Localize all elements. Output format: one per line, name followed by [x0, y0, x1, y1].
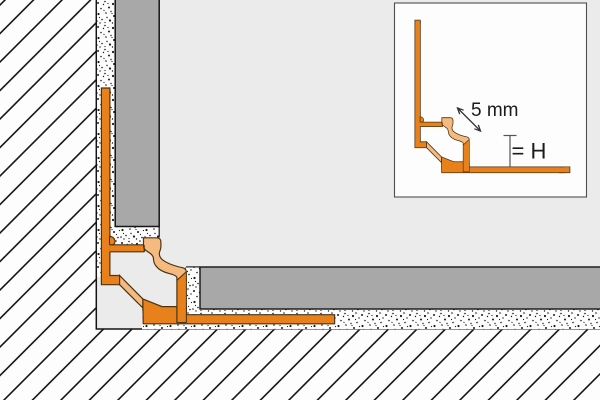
svg-text:5 mm: 5 mm [471, 100, 519, 121]
svg-text:= H: = H [512, 139, 547, 164]
